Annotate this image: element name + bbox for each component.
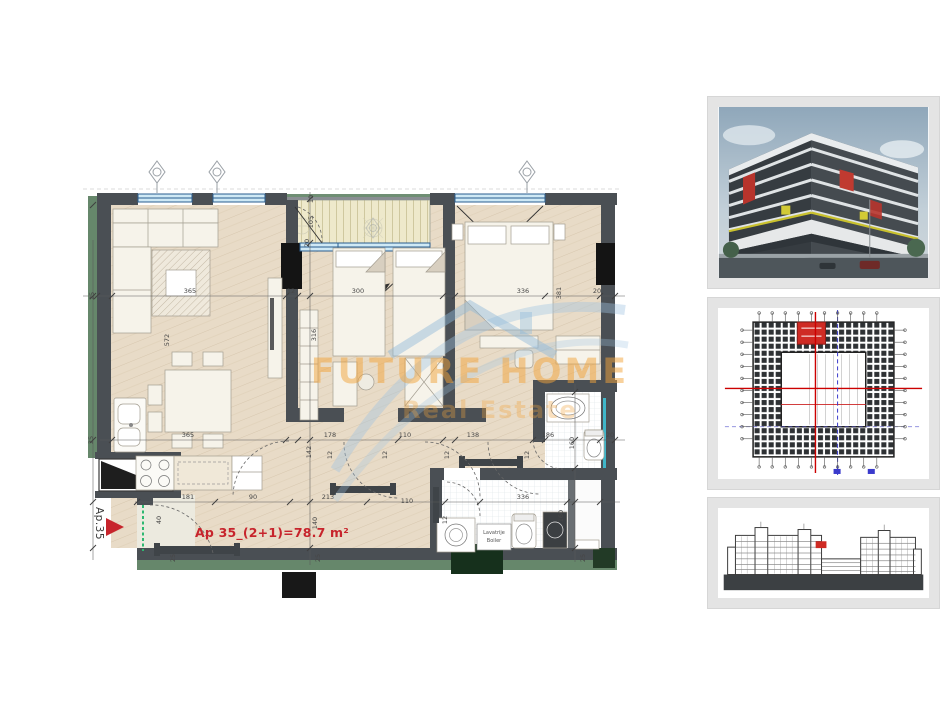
thumbnail-site-plan[interactable]	[707, 297, 940, 490]
dimension-label: 572	[163, 334, 171, 346]
laundry-label-line2: Boiler	[487, 538, 502, 544]
dimension-label: 160	[557, 510, 565, 522]
dimension-label: 316	[310, 329, 318, 341]
watermark-subtitle: Real Estate	[402, 396, 578, 424]
dimension-label: 381	[555, 287, 563, 299]
laundry-label-line1: Lavatrije	[483, 530, 505, 536]
dimension-label: 142	[305, 446, 313, 458]
dimension-label: 12	[523, 451, 531, 459]
dimension-label: 336	[517, 493, 529, 501]
dimension-label: 105	[307, 216, 315, 228]
dimension-label: 336	[517, 287, 529, 295]
site-plan-image	[718, 308, 929, 479]
dimension-label: 40	[155, 516, 163, 524]
apartment-area-label: Ap 35_(2+1)=78.7 m²	[195, 525, 349, 541]
dimension-label: 20	[606, 431, 614, 439]
dimension-label: 186	[542, 431, 554, 439]
listing-image: Lavatrije Boiler	[0, 0, 950, 713]
dimension-label: 25	[314, 554, 322, 562]
dimension-label: 110	[401, 497, 413, 505]
building-render-image	[718, 107, 929, 278]
highlighted-unit-elevation	[816, 541, 827, 548]
dimension-label: 12	[287, 287, 295, 295]
dimension-label: 138	[467, 431, 479, 439]
dimension-label: 20	[303, 239, 311, 247]
dimension-label: 178	[324, 431, 336, 439]
dimension-label: 25	[579, 554, 587, 562]
dimension-label: 213	[322, 493, 334, 501]
dimension-label: 25	[87, 436, 95, 444]
thumbnail-building-elevation[interactable]	[707, 497, 940, 609]
dimension-label: 25	[169, 554, 177, 562]
dimension-label: 90	[249, 493, 257, 501]
thumbnail-building-render[interactable]	[707, 96, 940, 289]
highlighted-unit	[797, 322, 825, 344]
dimension-label: 365	[184, 287, 196, 295]
laundry-label: Lavatrije Boiler	[477, 524, 511, 550]
dimension-label: 25	[88, 292, 96, 300]
dimension-label: 12	[443, 451, 451, 459]
entry-unit-label: Ap.35	[93, 507, 105, 540]
building-elevation-image	[718, 508, 929, 598]
dimension-label: 12	[441, 516, 449, 524]
floor-plan: Lavatrije Boiler	[55, 145, 645, 620]
dimension-label: 181	[182, 493, 194, 501]
dimension-label: 160	[568, 437, 576, 449]
dimension-label: 300	[352, 287, 364, 295]
dimension-label: 12	[326, 451, 334, 459]
dimension-label: 12	[381, 451, 389, 459]
dimension-label: 10	[307, 195, 315, 203]
dimension-label: 20	[593, 287, 601, 295]
watermark-title: FUTURE HOME	[311, 352, 629, 392]
dimension-label: 110	[399, 431, 411, 439]
dimension-label: 365	[182, 431, 194, 439]
